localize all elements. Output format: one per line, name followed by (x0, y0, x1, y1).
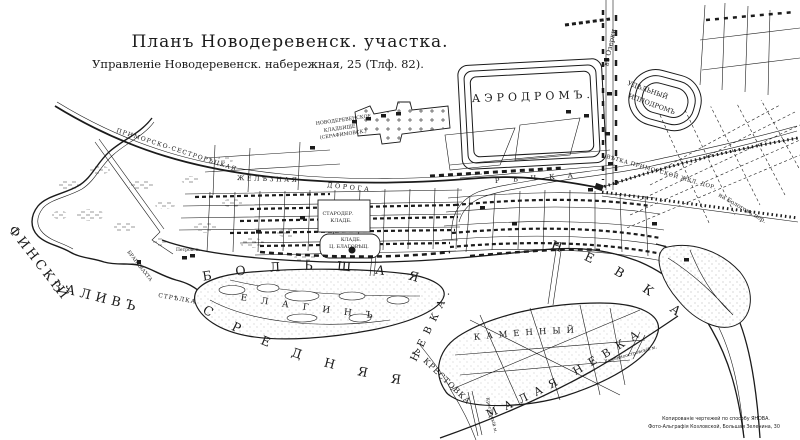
corner-streets-topright (700, 3, 800, 95)
map-canvas: Планъ Новодеревенск. участка. Управленіе… (0, 0, 800, 440)
stroganov-bridge (548, 250, 561, 305)
railway-junction-building (594, 183, 604, 191)
label-blagoveshchenskoe-cemetery-2: Ц. БЛАГОВѢЩ. (329, 244, 369, 250)
label-aerodrome: АЭРОДРОМЪ. (472, 88, 594, 105)
label-staroderevenskoe-cemetery-1: СТАРОДЕР. (322, 211, 353, 217)
credits-line1: Копированіе чертежей по способу ЯНОВА. (662, 415, 770, 422)
label-staroderevenskoe-cemetery-2: КЛАДБ. (330, 218, 352, 224)
label-railway-primorsko: ПРИМОРСКО-СЕСТРОРѢЦКАЯ (115, 127, 238, 173)
cemetery-novoderevenskoe (355, 102, 450, 144)
credits-line2: Фото-Альграфія Козловской, Большая Зелен… (648, 423, 780, 430)
page-title: Планъ Новодеревенск. участка. (131, 32, 448, 52)
map-sheet: Планъ Новодеревенск. участка. Управленіе… (0, 0, 800, 440)
page-subtitle: Управленіе Новодеревенск. набережная, 25… (92, 57, 424, 71)
label-strelka: СТРѢЛКА (158, 292, 197, 306)
railway-bologov-branch (602, 192, 798, 222)
label-petrovsky: Петровск. (176, 247, 201, 253)
label-blagoveshchenskoe-cemetery-1: КЛАДБ. (341, 237, 362, 243)
pier-lines (95, 139, 173, 254)
label-bologov-lane: на Бологовъ пер. (717, 192, 767, 225)
label-brandvahta: БРАНДВАХТА (125, 250, 153, 283)
label-railway-zheleznaya: ЖЕЛѢЗНАЯ (237, 174, 300, 184)
